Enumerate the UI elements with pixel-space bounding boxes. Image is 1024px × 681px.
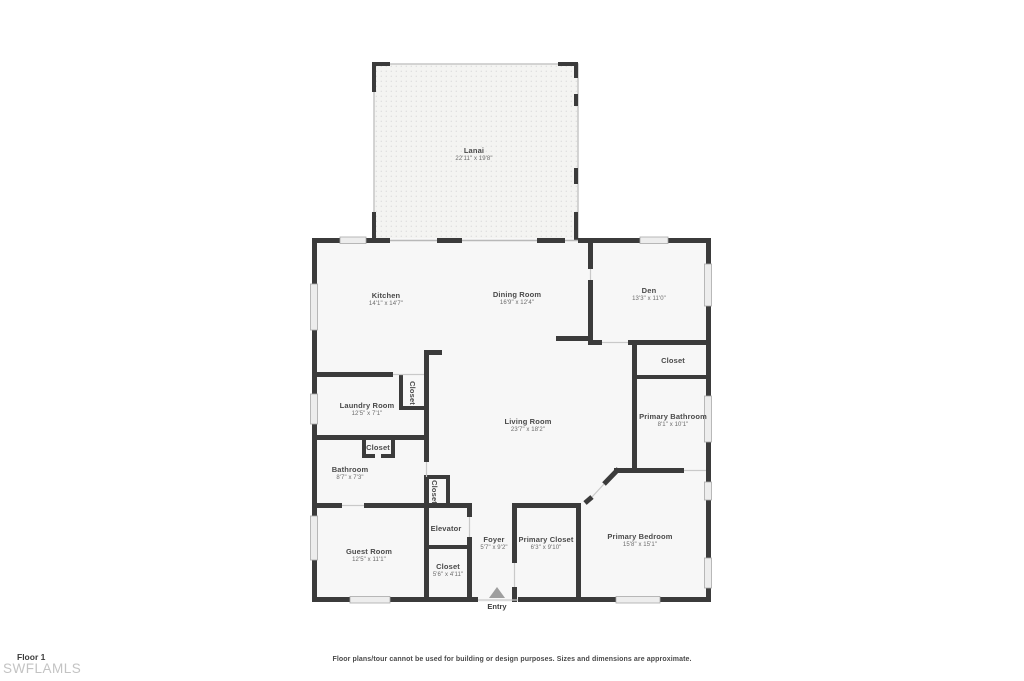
room-label-guest-closet: Closet 5'6" x 4'11" xyxy=(433,562,463,580)
room-label-guest-room: Guest Room 12'5" x 11'1" xyxy=(346,547,392,565)
room-label-den-closet: Closet xyxy=(661,356,685,366)
room-label-hall-closet: Closet xyxy=(429,480,439,504)
disclaimer-text: Floor plans/tour cannot be used for buil… xyxy=(0,656,1024,663)
floorplan-canvas xyxy=(0,0,1024,681)
entry-label: Entry xyxy=(487,602,506,611)
room-label-dining-room: Dining Room 16'9" x 12'4" xyxy=(493,290,541,308)
room-label-laundry-room: Laundry Room 12'5" x 7'1" xyxy=(340,401,395,419)
room-label-elevator: Elevator xyxy=(431,524,462,534)
room-label-den: Den 13'3" x 11'0" xyxy=(632,286,666,304)
room-label-bath-closet: Closet xyxy=(366,443,390,453)
room-label-living-room: Living Room 23'7" x 18'2" xyxy=(504,417,551,435)
room-label-primary-bedroom: Primary Bedroom 15'8" x 15'1" xyxy=(607,532,672,550)
room-label-primary-closet: Primary Closet 6'3" x 9'10" xyxy=(518,535,573,553)
room-label-primary-bathroom: Primary Bathroom 8'1" x 10'1" xyxy=(639,412,707,430)
room-label-kitchen: Kitchen 14'1" x 14'7" xyxy=(369,291,403,309)
mls-watermark: SWFLAMLS xyxy=(3,661,81,676)
room-label-bathroom: Bathroom 8'7" x 7'3" xyxy=(332,465,369,483)
room-label-lanai: Lanai 22'11" x 19'8" xyxy=(455,146,492,164)
room-label-laundry-closet: Closet xyxy=(407,381,417,405)
room-label-foyer: Foyer 5'7" x 9'2" xyxy=(480,535,507,553)
